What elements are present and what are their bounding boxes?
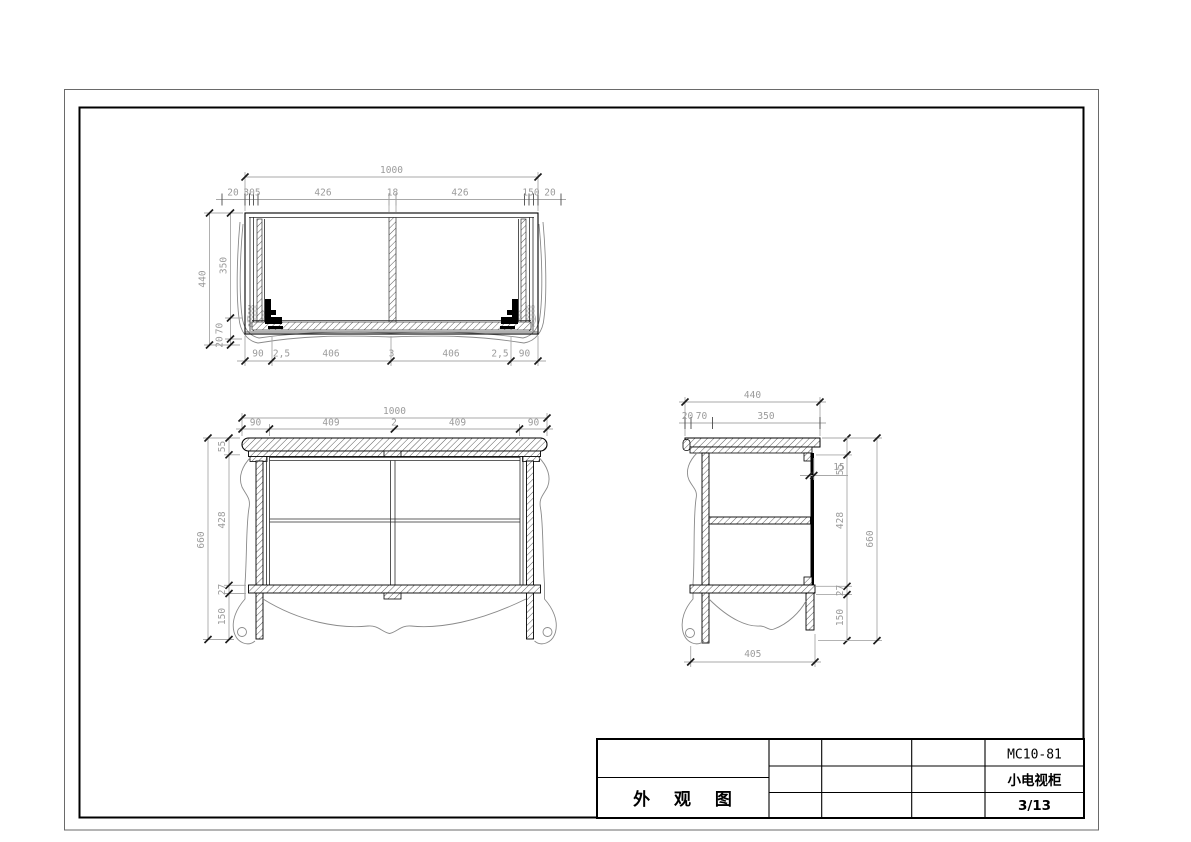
front-view-geometry	[233, 438, 556, 644]
dim-label: 55	[835, 464, 846, 475]
side-leg-front	[702, 453, 709, 643]
dim-label: 428	[835, 512, 846, 529]
top-panel	[242, 438, 547, 451]
front-leg-left	[256, 461, 263, 639]
dim-label: 20	[227, 188, 239, 199]
dim-label: 440	[744, 390, 761, 401]
dim-label: 350	[219, 257, 230, 274]
dim-label: 90	[528, 418, 540, 429]
drawing-sheet: 1000 20 305 426 18 426 150 20 440	[0, 0, 1191, 842]
product-name: 小电视柜	[1008, 772, 1062, 789]
side-leg-back	[806, 593, 814, 630]
side-view-dimensions: 440 20 70 350 15 405	[679, 390, 882, 667]
dim-label: 90	[250, 418, 262, 429]
center-divider	[389, 218, 396, 323]
dim-label: 18	[387, 188, 399, 199]
side-view: 440 20 70 350 15 405	[679, 390, 882, 667]
leg-contour-left	[233, 457, 255, 644]
dim-label: 409	[449, 418, 466, 429]
bottom-rail	[249, 585, 541, 593]
dim-label: 3	[389, 349, 395, 360]
dim-label: 426	[314, 188, 331, 199]
front-view: 1000 90 409 2 409 90 660	[196, 406, 556, 644]
dim-label: 660	[196, 531, 207, 548]
drawing-title: 外 观 图	[633, 789, 741, 810]
apron-curve	[263, 599, 526, 634]
leg-contour-right	[535, 457, 557, 644]
top-view: 1000 20 305 426 18 426 150 20 440	[198, 165, 567, 366]
sheet-number: 3/13	[1018, 798, 1051, 814]
dim-label: 150	[522, 188, 539, 199]
dim-label: 2,5	[491, 349, 508, 360]
dim-label: 70	[696, 411, 708, 422]
leg-contour-front	[682, 453, 704, 644]
dim-label: 90	[252, 349, 264, 360]
dim-label: 1000	[383, 406, 406, 417]
front-leg-right	[527, 461, 534, 639]
dim-label: 1000	[380, 165, 403, 176]
cad-canvas: 1000 20 305 426 18 426 150 20 440	[0, 0, 1191, 842]
side-view-geometry	[682, 438, 820, 644]
drawing-frame	[65, 90, 1099, 831]
title-block: 外 观 图 MC10-81 小电视柜 3/13	[597, 739, 1084, 818]
dim-label: 406	[322, 349, 339, 360]
dim-label: 660	[865, 530, 876, 547]
dim-label: 20	[682, 411, 694, 422]
dim-label: 2	[391, 418, 397, 429]
model-number: MC10-81	[1007, 748, 1062, 763]
dim-label: 409	[322, 418, 339, 429]
dim-label: 2,5	[273, 349, 290, 360]
dim-label: 90	[519, 349, 531, 360]
dim-label: 150	[835, 609, 846, 626]
shelf	[709, 517, 811, 524]
dim-label: 426	[451, 188, 468, 199]
dim-label: 350	[757, 411, 774, 422]
dim-label: 150	[217, 608, 228, 625]
apron-curve	[709, 599, 806, 629]
dim-label: 405	[744, 649, 761, 660]
top-panel	[685, 438, 820, 447]
dim-label: 305	[243, 188, 260, 199]
dim-label: 406	[442, 349, 459, 360]
dim-label: 440	[198, 270, 209, 287]
dim-label: 20	[215, 336, 226, 348]
dim-label: 27	[217, 584, 228, 595]
top-view-geometry	[237, 213, 546, 343]
dim-label: 70	[215, 323, 226, 335]
bottom-rail	[252, 322, 531, 330]
dim-label: 55	[217, 441, 228, 452]
bottom-rail	[690, 585, 815, 593]
dim-label: 428	[217, 511, 228, 528]
dim-label: 20	[544, 188, 556, 199]
dim-label: 27	[835, 585, 846, 596]
